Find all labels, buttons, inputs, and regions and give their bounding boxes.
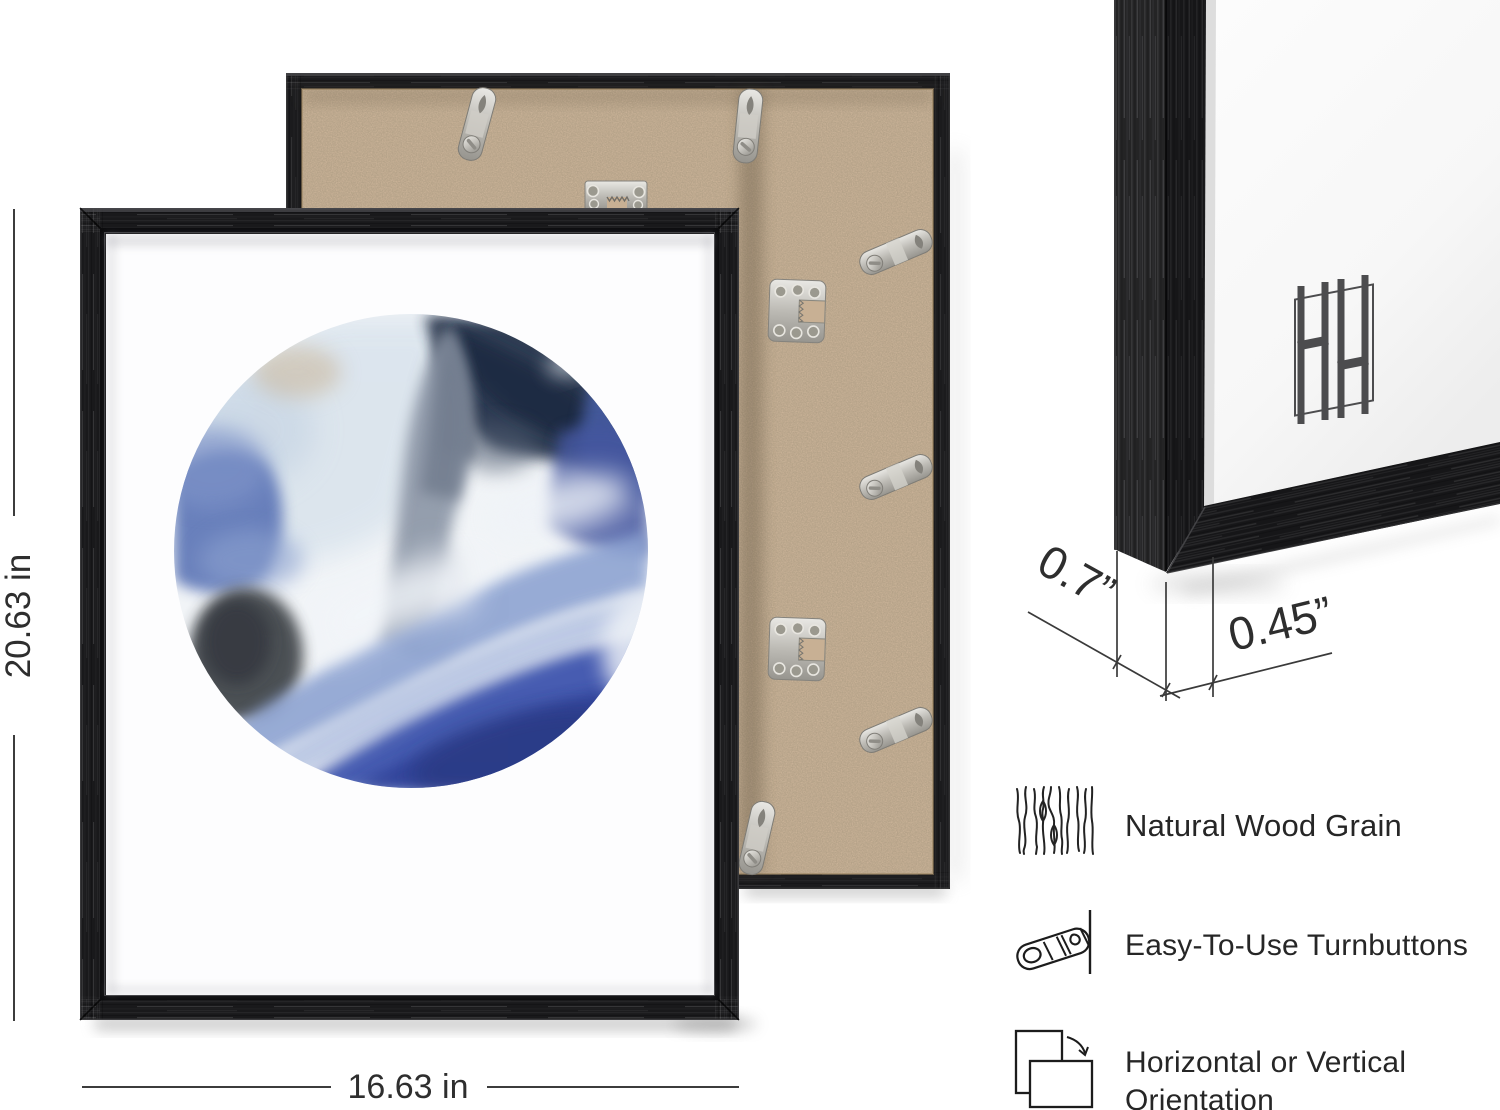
svg-text:16.63 in: 16.63 in xyxy=(348,1068,469,1106)
svg-text:Natural Wood Grain: Natural Wood Grain xyxy=(1125,808,1402,843)
svg-text:Orientation: Orientation xyxy=(1125,1084,1274,1110)
svg-text:20.63 in: 20.63 in xyxy=(0,554,38,679)
svg-text:Horizontal or Vertical: Horizontal or Vertical xyxy=(1125,1046,1406,1079)
svg-text:Easy-To-Use Turnbuttons: Easy-To-Use Turnbuttons xyxy=(1125,929,1468,962)
